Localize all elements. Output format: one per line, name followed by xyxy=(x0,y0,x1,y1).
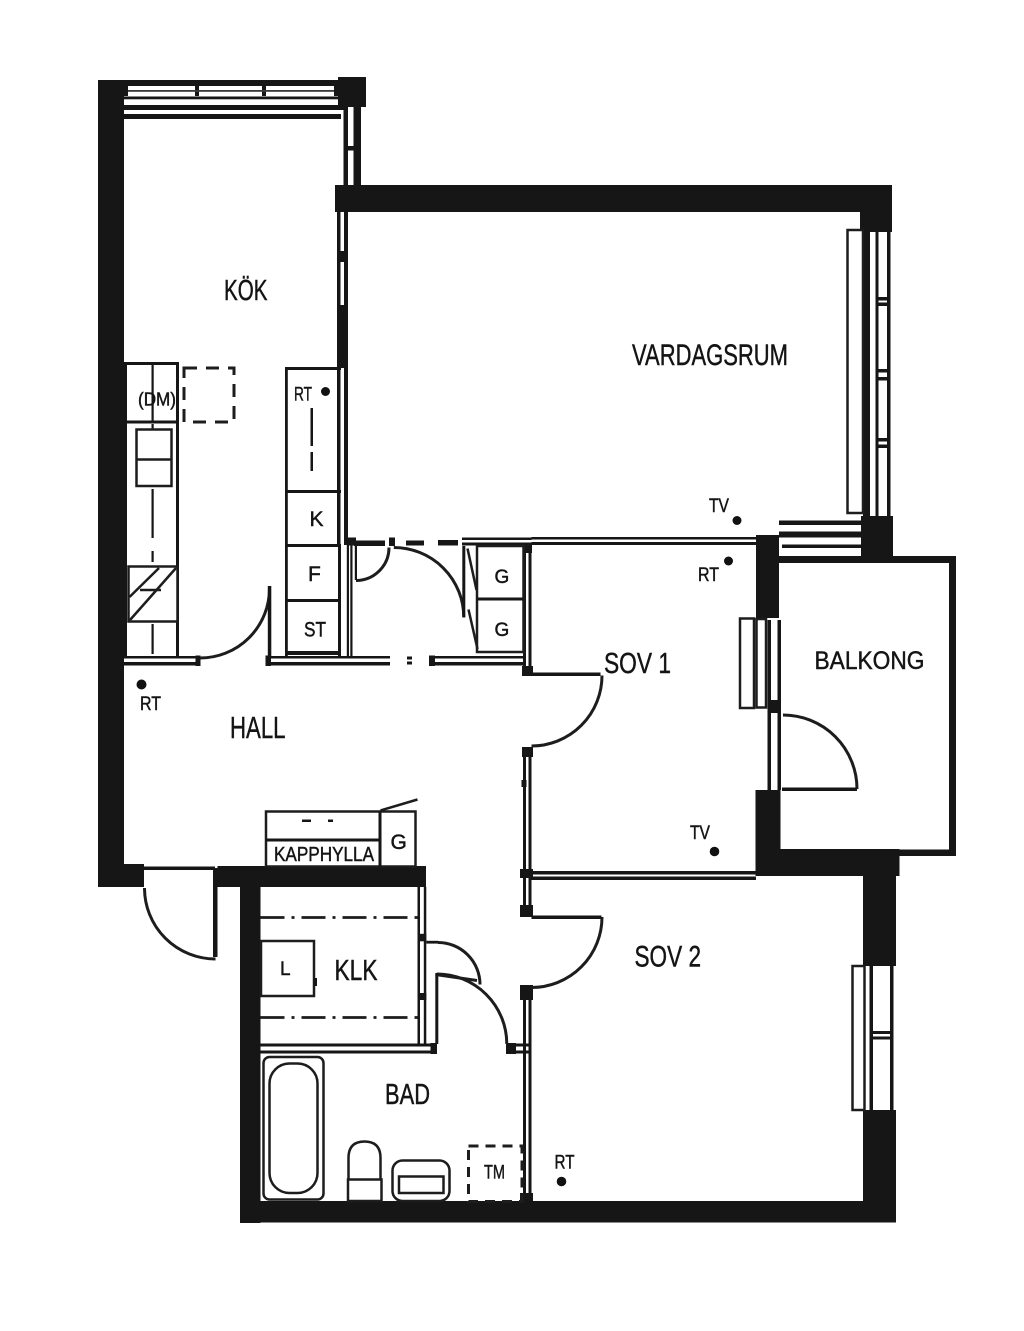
svg-text:KÖK: KÖK xyxy=(224,275,268,307)
svg-text:BALKONG: BALKONG xyxy=(815,647,925,675)
svg-text:RT: RT xyxy=(555,1153,575,1174)
svg-text:KLK: KLK xyxy=(335,955,379,987)
svg-text:TV: TV xyxy=(709,496,729,517)
svg-text:RT: RT xyxy=(140,694,161,715)
svg-text:BAD: BAD xyxy=(385,1079,430,1111)
svg-text:KAPPHYLLA: KAPPHYLLA xyxy=(274,844,375,866)
svg-text:ST: ST xyxy=(304,619,326,642)
svg-text:G: G xyxy=(495,620,510,641)
svg-text:G: G xyxy=(495,567,510,588)
svg-text:TM: TM xyxy=(484,1163,505,1184)
svg-text:(DM): (DM) xyxy=(138,390,176,410)
svg-text:RT: RT xyxy=(698,565,719,586)
svg-text:F: F xyxy=(308,563,321,586)
svg-text:L: L xyxy=(280,959,291,980)
svg-text:HALL: HALL xyxy=(230,710,286,745)
svg-text:RT: RT xyxy=(294,385,312,406)
svg-text:G: G xyxy=(391,831,407,854)
svg-text:SOV 1: SOV 1 xyxy=(604,648,671,680)
svg-text:VARDAGSRUM: VARDAGSRUM xyxy=(632,339,788,372)
svg-text:TV: TV xyxy=(690,823,710,844)
svg-text:K: K xyxy=(310,508,324,531)
svg-text:SOV 2: SOV 2 xyxy=(635,941,702,974)
